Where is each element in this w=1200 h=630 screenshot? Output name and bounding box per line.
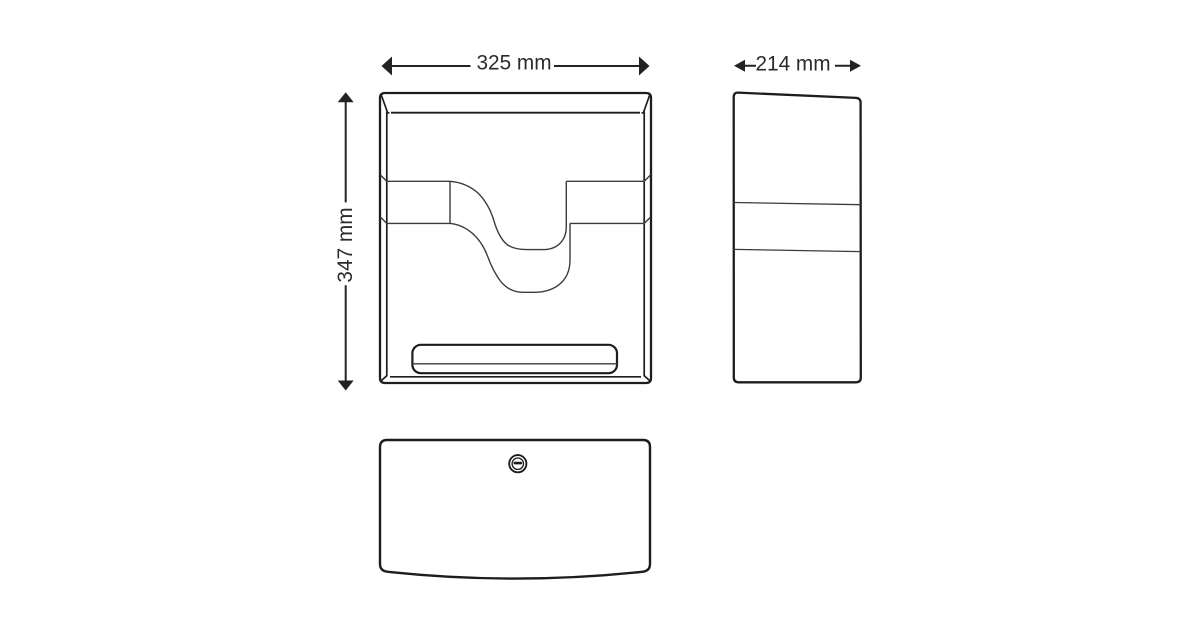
svg-text:347 mm: 347 mm	[334, 207, 357, 282]
svg-text:325 mm: 325 mm	[476, 52, 551, 75]
svg-text:214 mm: 214 mm	[755, 53, 830, 76]
